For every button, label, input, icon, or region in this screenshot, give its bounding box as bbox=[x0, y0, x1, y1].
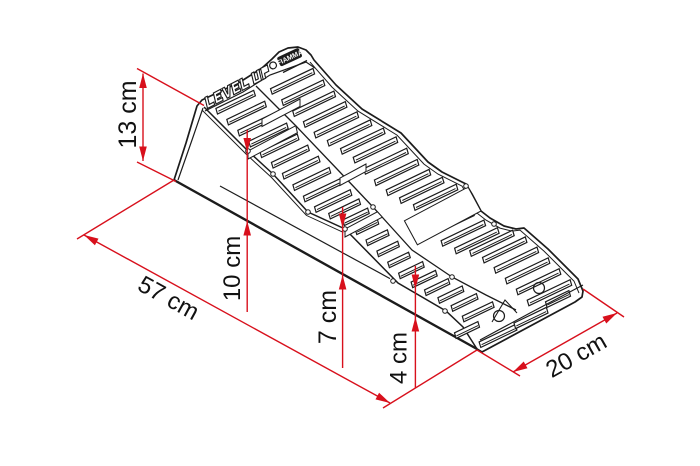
svg-text:4 cm: 4 cm bbox=[385, 332, 412, 384]
svg-text:7 cm: 7 cm bbox=[314, 290, 342, 344]
svg-text:13 cm: 13 cm bbox=[114, 80, 142, 148]
svg-text:10 cm: 10 cm bbox=[219, 236, 246, 301]
